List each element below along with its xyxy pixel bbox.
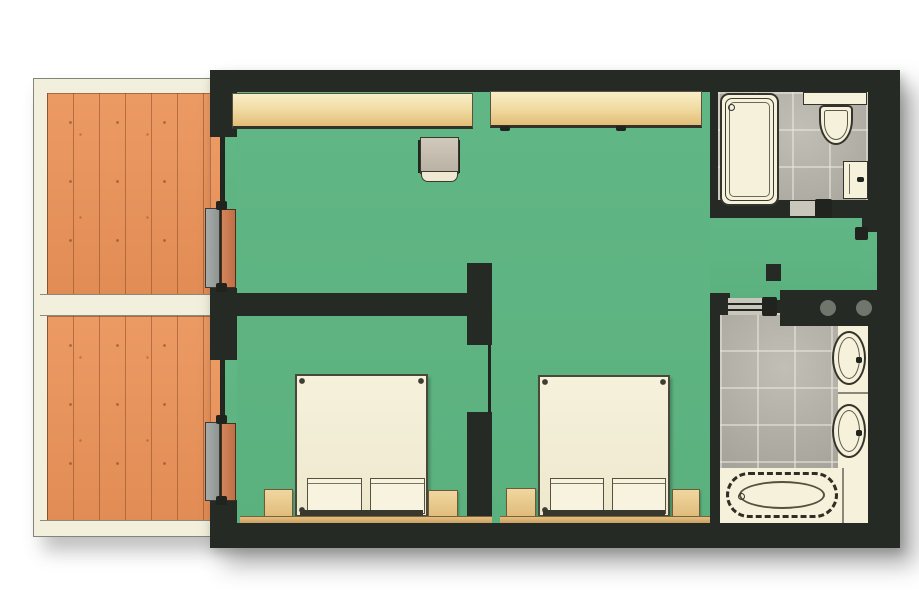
balcony-lower-deck: [47, 316, 213, 521]
bed-right: [538, 375, 670, 517]
center-partition-wall: [213, 293, 492, 316]
entry-door-hardware-icon: [855, 227, 868, 240]
shelf-support-icon: [616, 126, 626, 131]
bedroom-left-baseboard: [240, 516, 492, 523]
balcony-mid-rail-edge-top: [40, 294, 213, 295]
desk-chair: [420, 137, 459, 174]
pillow: [550, 478, 604, 514]
balcony-bottom-rail-edge: [40, 520, 213, 521]
nightstand: [264, 489, 293, 519]
faucet-icon: [738, 493, 745, 500]
bathtub-upper: [720, 93, 779, 206]
balcony-mid-rail-edge-bottom: [40, 315, 213, 316]
bathroom-lower-door-jamb: [710, 293, 730, 315]
shelf-support-icon: [500, 126, 510, 131]
sliding-door-wood-panel-upper: [221, 209, 236, 288]
sliding-door-glass-panel-lower: [205, 422, 220, 501]
toilet-bowl-inner: [824, 110, 848, 140]
bathtub-lower: [726, 472, 838, 518]
wardrobe-shelf-right: [490, 91, 702, 128]
balcony-upper-deck: [47, 93, 213, 295]
door-hardware-icon: [216, 283, 227, 292]
sink-cabinet-door-line: [849, 164, 850, 194]
service-chase: [780, 290, 880, 326]
corner-post: [766, 264, 781, 281]
bathroom-lower-door-opening: [728, 298, 766, 315]
pillow: [307, 478, 362, 514]
bedroom-divider-wall-upper: [467, 263, 492, 345]
bathroom-upper-door-opening: [790, 201, 818, 216]
counter-divider-line: [838, 392, 868, 394]
bathroom-lower-door-track-1: [728, 303, 766, 305]
bathroom-upper-door-hardware-icon: [815, 199, 832, 218]
oval-sink-lower: [832, 404, 866, 458]
bathtub-upper-basin: [729, 102, 770, 197]
pillow: [612, 478, 666, 514]
bathtub-lower-basin: [739, 481, 825, 509]
nightstand: [506, 488, 536, 518]
wardrobe-shelf-left: [232, 93, 473, 129]
desk-chair-backrest: [421, 171, 458, 182]
chase-opening-icon: [856, 300, 872, 316]
door-hardware-icon: [216, 415, 227, 424]
bedroom-right-baseboard: [500, 516, 710, 523]
toilet-tank: [803, 92, 867, 105]
floor-plan: [0, 0, 919, 612]
bedroom-door-leaf: [488, 345, 491, 413]
faucet-icon: [856, 430, 862, 436]
tub-deck-divider-line: [842, 468, 844, 523]
sliding-door-wood-panel-lower: [221, 423, 236, 501]
door-hardware-icon: [216, 496, 227, 505]
entry-corridor-floor: [710, 218, 862, 300]
faucet-icon: [856, 357, 862, 363]
chase-opening-icon: [820, 300, 836, 316]
pillow: [370, 478, 425, 514]
faucet-icon: [857, 177, 864, 182]
bathroom-lower-door-hardware-icon: [762, 297, 777, 316]
faucet-icon: [728, 104, 735, 111]
oval-sink-upper: [832, 331, 866, 385]
bedroom-divider-wall-lower: [467, 412, 492, 523]
bed-left: [295, 374, 428, 517]
bathroom-lower-floor: [720, 313, 838, 468]
sliding-door-glass-panel-upper: [205, 208, 220, 288]
nightstand: [672, 489, 700, 519]
door-hardware-icon: [216, 201, 227, 210]
bathroom-lower-door-track-2: [728, 309, 766, 311]
sink-cabinet: [843, 161, 868, 199]
